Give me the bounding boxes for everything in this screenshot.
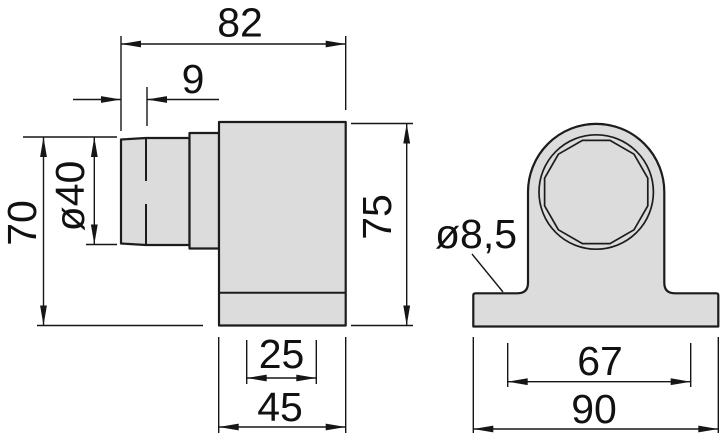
dim-label-total-length: 82	[217, 0, 263, 46]
dim-label-overall-height: 70	[0, 200, 45, 246]
drawing-canvas: 82 9 ø40 70	[0, 0, 720, 437]
arrowhead-right	[326, 41, 346, 48]
collar-outline	[190, 133, 220, 249]
dim-label-mounting-hole-diameter: ø8,5	[435, 211, 517, 257]
dim-mounting-hole: ø8,5	[435, 211, 517, 292]
arrowhead-left	[121, 41, 141, 48]
dim-tip-length: 9	[73, 56, 219, 126]
front-view: ø8,5 67 90	[435, 124, 718, 433]
dim-label-tip-length: 9	[182, 56, 205, 102]
dim-cable-entry-width: 25	[247, 331, 317, 384]
dim-hole-spacing: 67	[508, 338, 691, 387]
arrowhead-up	[403, 124, 410, 144]
arrowhead-left	[219, 424, 239, 431]
arrowhead-down	[40, 306, 47, 326]
dim-label-body-height: 75	[354, 194, 400, 240]
arrowhead-right	[147, 96, 167, 103]
side-view: 82 9 ø40 70	[0, 0, 413, 433]
housing-outline	[219, 122, 346, 326]
arrowhead-right	[671, 378, 691, 385]
dim-label-body-width: 45	[257, 384, 303, 430]
arrowhead-up	[40, 137, 47, 157]
leader-line	[472, 254, 503, 292]
arrowhead-right	[698, 426, 718, 433]
spigot-outline	[121, 138, 190, 245]
arrowhead-right	[326, 424, 346, 431]
arrowhead-left	[101, 96, 121, 103]
dim-label-spigot-diameter: ø40	[47, 161, 93, 232]
dim-label-hole-spacing: 67	[577, 338, 623, 384]
arrowhead-down	[403, 306, 410, 326]
arrowhead-left	[508, 378, 528, 385]
dim-label-base-width: 90	[571, 386, 617, 432]
arrowhead-left	[473, 426, 493, 433]
dim-label-cable-entry-width: 25	[259, 331, 305, 377]
technical-drawing: 82 9 ø40 70	[0, 0, 720, 437]
arrowhead-up	[91, 137, 98, 157]
dim-body-height: 75	[351, 124, 413, 326]
dim-total-length: 82	[121, 0, 346, 131]
